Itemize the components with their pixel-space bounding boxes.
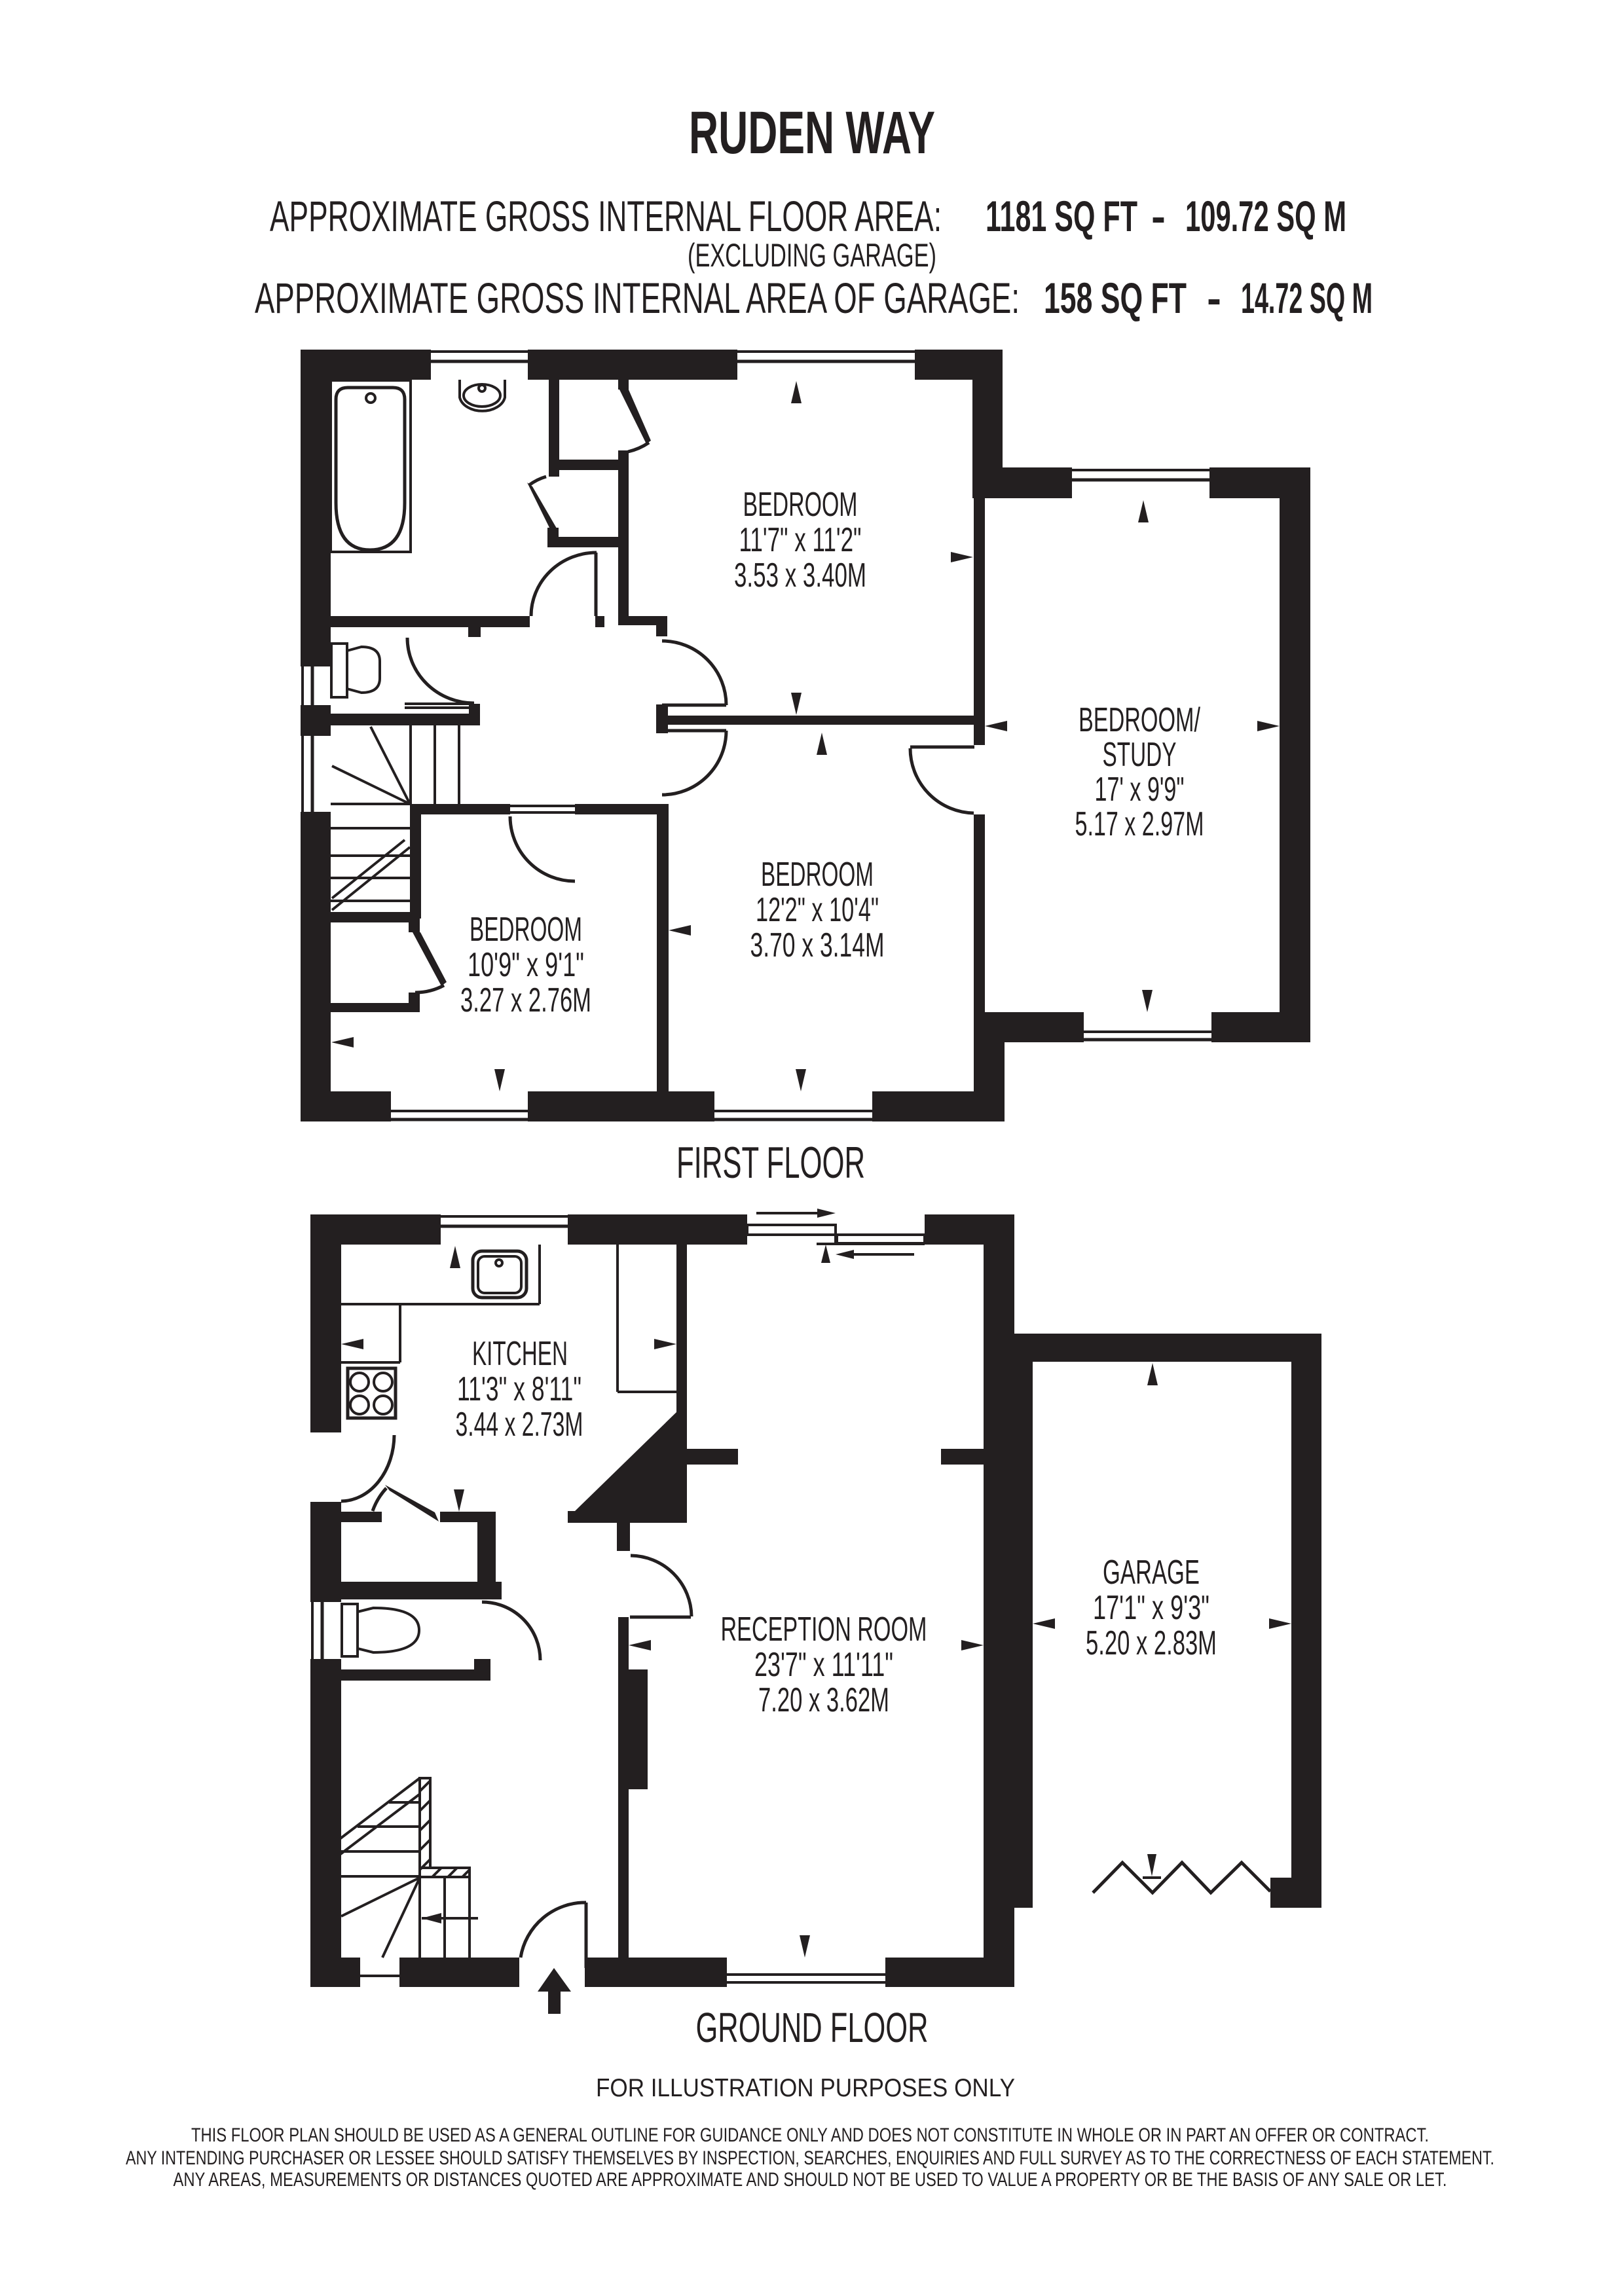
svg-text:(EXCLUDING GARAGE): (EXCLUDING GARAGE) xyxy=(688,237,936,274)
svg-text:3.53 x 3.40M: 3.53 x 3.40M xyxy=(734,556,866,594)
svg-text:3.44 x 2.73M: 3.44 x 2.73M xyxy=(456,1406,583,1444)
svg-text:1181 SQ FT: 1181 SQ FT xyxy=(986,192,1137,240)
svg-text:FIRST FLOOR: FIRST FLOOR xyxy=(676,1138,865,1188)
svg-text:RUDEN WAY: RUDEN WAY xyxy=(689,100,935,166)
svg-text:3.70 x 3.14M: 3.70 x 3.14M xyxy=(750,926,885,964)
svg-text:11'7" x 11'2": 11'7" x 11'2" xyxy=(739,521,862,559)
svg-text:-: - xyxy=(1207,274,1221,322)
svg-text:GROUND FLOOR: GROUND FLOOR xyxy=(696,2004,929,2051)
svg-text:BEDROOM: BEDROOM xyxy=(743,486,858,524)
svg-text:-: - xyxy=(1151,192,1166,240)
svg-text:12'2" x 10'4": 12'2" x 10'4" xyxy=(756,891,879,929)
svg-text:BEDROOM: BEDROOM xyxy=(761,856,874,894)
svg-text:10'9" x 9'1": 10'9" x 9'1" xyxy=(468,946,584,984)
svg-text:109.72 SQ M: 109.72 SQ M xyxy=(1185,192,1346,240)
svg-text:3.27 x 2.76M: 3.27 x 2.76M xyxy=(460,981,591,1019)
svg-text:ANY AREAS, MEASUREMENTS OR DIS: ANY AREAS, MEASUREMENTS OR DISTANCES QUO… xyxy=(174,2169,1447,2191)
svg-text:STUDY: STUDY xyxy=(1103,736,1177,774)
svg-text:KITCHEN: KITCHEN xyxy=(472,1335,568,1373)
svg-text:23'7" x 11'11": 23'7" x 11'11" xyxy=(754,1646,893,1684)
svg-text:GARAGE: GARAGE xyxy=(1103,1554,1200,1592)
svg-text:FOR ILLUSTRATION PURPOSES ONLY: FOR ILLUSTRATION PURPOSES ONLY xyxy=(596,2074,1015,2102)
svg-text:BEDROOM: BEDROOM xyxy=(470,911,582,949)
svg-text:17'1" x 9'3": 17'1" x 9'3" xyxy=(1093,1589,1209,1627)
svg-text:5.20 x 2.83M: 5.20 x 2.83M xyxy=(1086,1624,1217,1662)
svg-text:14.72 SQ M: 14.72 SQ M xyxy=(1241,274,1373,322)
svg-text:7.20 x 3.62M: 7.20 x 3.62M xyxy=(758,1681,889,1719)
svg-text:RECEPTION ROOM: RECEPTION ROOM xyxy=(721,1611,927,1649)
svg-text:5.17 x 2.97M: 5.17 x 2.97M xyxy=(1075,805,1204,843)
svg-text:158 SQ FT: 158 SQ FT xyxy=(1044,274,1187,322)
svg-text:17' x 9'9": 17' x 9'9" xyxy=(1095,771,1185,809)
svg-text:11'3" x 8'11": 11'3" x 8'11" xyxy=(457,1370,581,1408)
svg-text:APPROXIMATE GROSS INTERNAL FLO: APPROXIMATE GROSS INTERNAL FLOOR AREA: xyxy=(270,192,942,240)
svg-text:APPROXIMATE GROSS INTERNAL ARE: APPROXIMATE GROSS INTERNAL AREA OF GARAG… xyxy=(255,274,1020,322)
svg-text:ANY INTENDING PURCHASER OR LES: ANY INTENDING PURCHASER OR LESSEE SHOULD… xyxy=(126,2147,1494,2169)
svg-text:THIS FLOOR PLAN SHOULD BE USED: THIS FLOOR PLAN SHOULD BE USED AS A GENE… xyxy=(191,2124,1429,2146)
svg-text:BEDROOM/: BEDROOM/ xyxy=(1079,701,1200,739)
